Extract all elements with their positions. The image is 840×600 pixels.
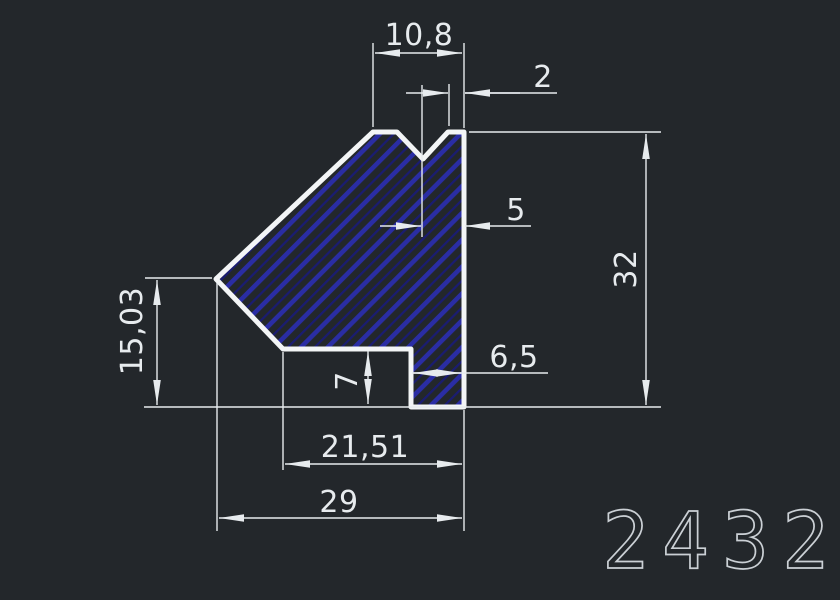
technical-drawing: 10,8 2 5 32 15,03 (0, 0, 840, 600)
dim-label-foot-height: 7 (330, 371, 365, 391)
dim-label-left-height: 15,03 (115, 287, 150, 375)
dim-label-top-width: 10,8 (385, 18, 454, 53)
dimension-bottom-inner-width: 21,51 (285, 430, 462, 465)
dim-label-bottom-inner-width: 21,51 (321, 430, 409, 465)
dimension-left-height: 15,03 (115, 280, 157, 405)
cad-canvas: 10,8 2 5 32 15,03 (0, 0, 840, 600)
dimension-notch-offset: 2 (406, 60, 557, 95)
profile-outline (216, 132, 464, 407)
dim-label-notch-offset: 2 (533, 60, 553, 95)
dim-label-total-width: 29 (319, 485, 358, 520)
dim-label-foot-width: 6,5 (489, 340, 538, 375)
dim-label-total-height: 32 (609, 249, 644, 288)
dimension-foot-height: 7 (330, 351, 368, 404)
dimension-total-width: 29 (219, 485, 462, 520)
dimension-total-height: 32 (609, 134, 646, 405)
part-number: 2432 (602, 497, 840, 587)
dim-label-notch-to-edge: 5 (506, 193, 526, 228)
dimension-top-width: 10,8 (375, 18, 462, 53)
